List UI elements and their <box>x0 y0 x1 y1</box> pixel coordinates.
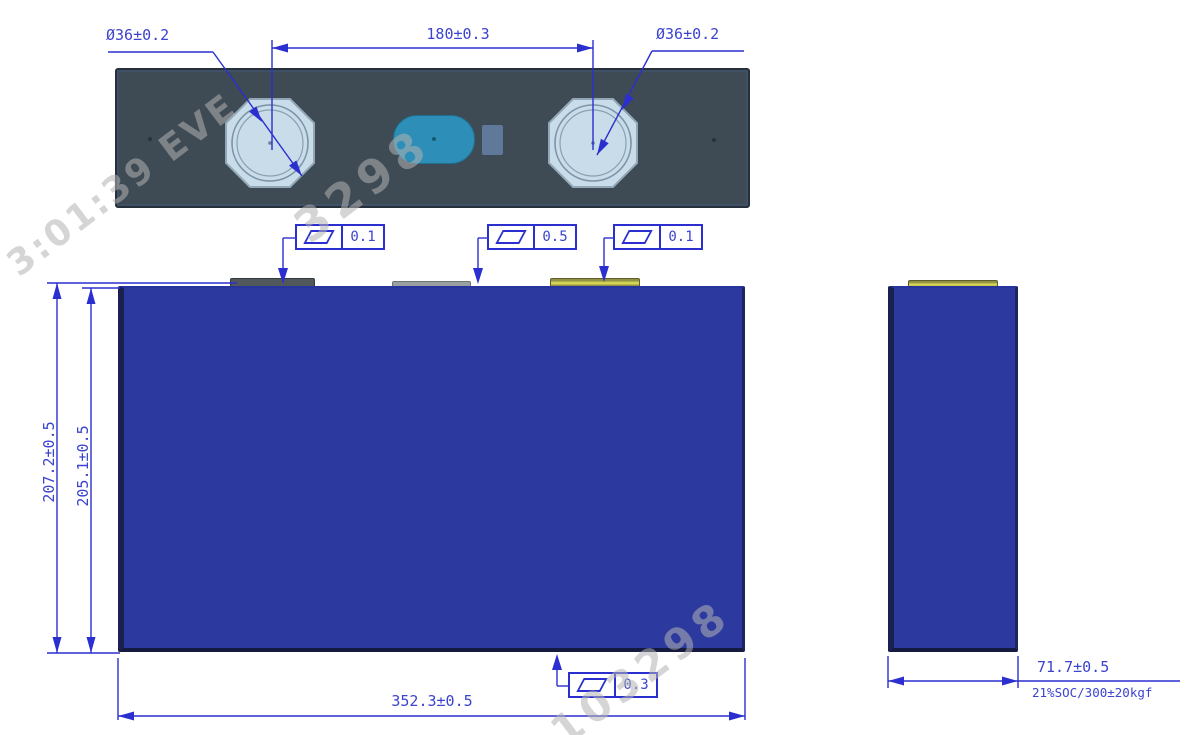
safety-vent-oval <box>393 115 475 164</box>
rivet-dot-right <box>712 138 716 142</box>
flatness-frame-top-right: 0.1 <box>613 224 703 250</box>
rivet-dot-left <box>148 137 152 141</box>
terminal-right <box>545 95 641 191</box>
flatness-icon <box>487 224 535 250</box>
terminal-left <box>222 95 318 191</box>
dim-height-case: 205.1±0.5 <box>75 410 91 522</box>
flatness-frame-top-left: 0.1 <box>295 224 385 250</box>
flatness-value: 0.5 <box>533 224 577 250</box>
dim-width: 352.3±0.5 <box>362 693 502 709</box>
flatness-value: 0.1 <box>659 224 703 250</box>
dim-thickness: 71.7±0.5 <box>1037 659 1109 675</box>
dim-terminal-right-diameter: Ø36±0.2 <box>656 26 719 42</box>
dim-height-overall: 207.2±0.5 <box>41 406 57 518</box>
front-view <box>118 286 745 652</box>
dim-terminal-pitch: 180±0.3 <box>398 26 518 42</box>
side-view <box>888 286 1018 652</box>
flatness-icon <box>568 672 616 698</box>
engineering-drawing: Ø36±0.2 180±0.3 Ø36±0.2 207.2±0.5 205.1±… <box>0 0 1185 735</box>
flatness-value: 0.3 <box>614 672 658 698</box>
flatness-icon <box>613 224 661 250</box>
flatness-frame-top-center: 0.5 <box>487 224 577 250</box>
flatness-icon <box>295 224 343 250</box>
flatness-value: 0.1 <box>341 224 385 250</box>
dim-terminal-left-diameter: Ø36±0.2 <box>106 27 169 43</box>
flatness-frame-bottom: 0.3 <box>568 672 658 698</box>
vent-center-dot <box>432 137 436 141</box>
marker-square <box>482 125 503 155</box>
dim-measure-condition: 21%SOC/300±20kgf <box>1032 685 1152 701</box>
